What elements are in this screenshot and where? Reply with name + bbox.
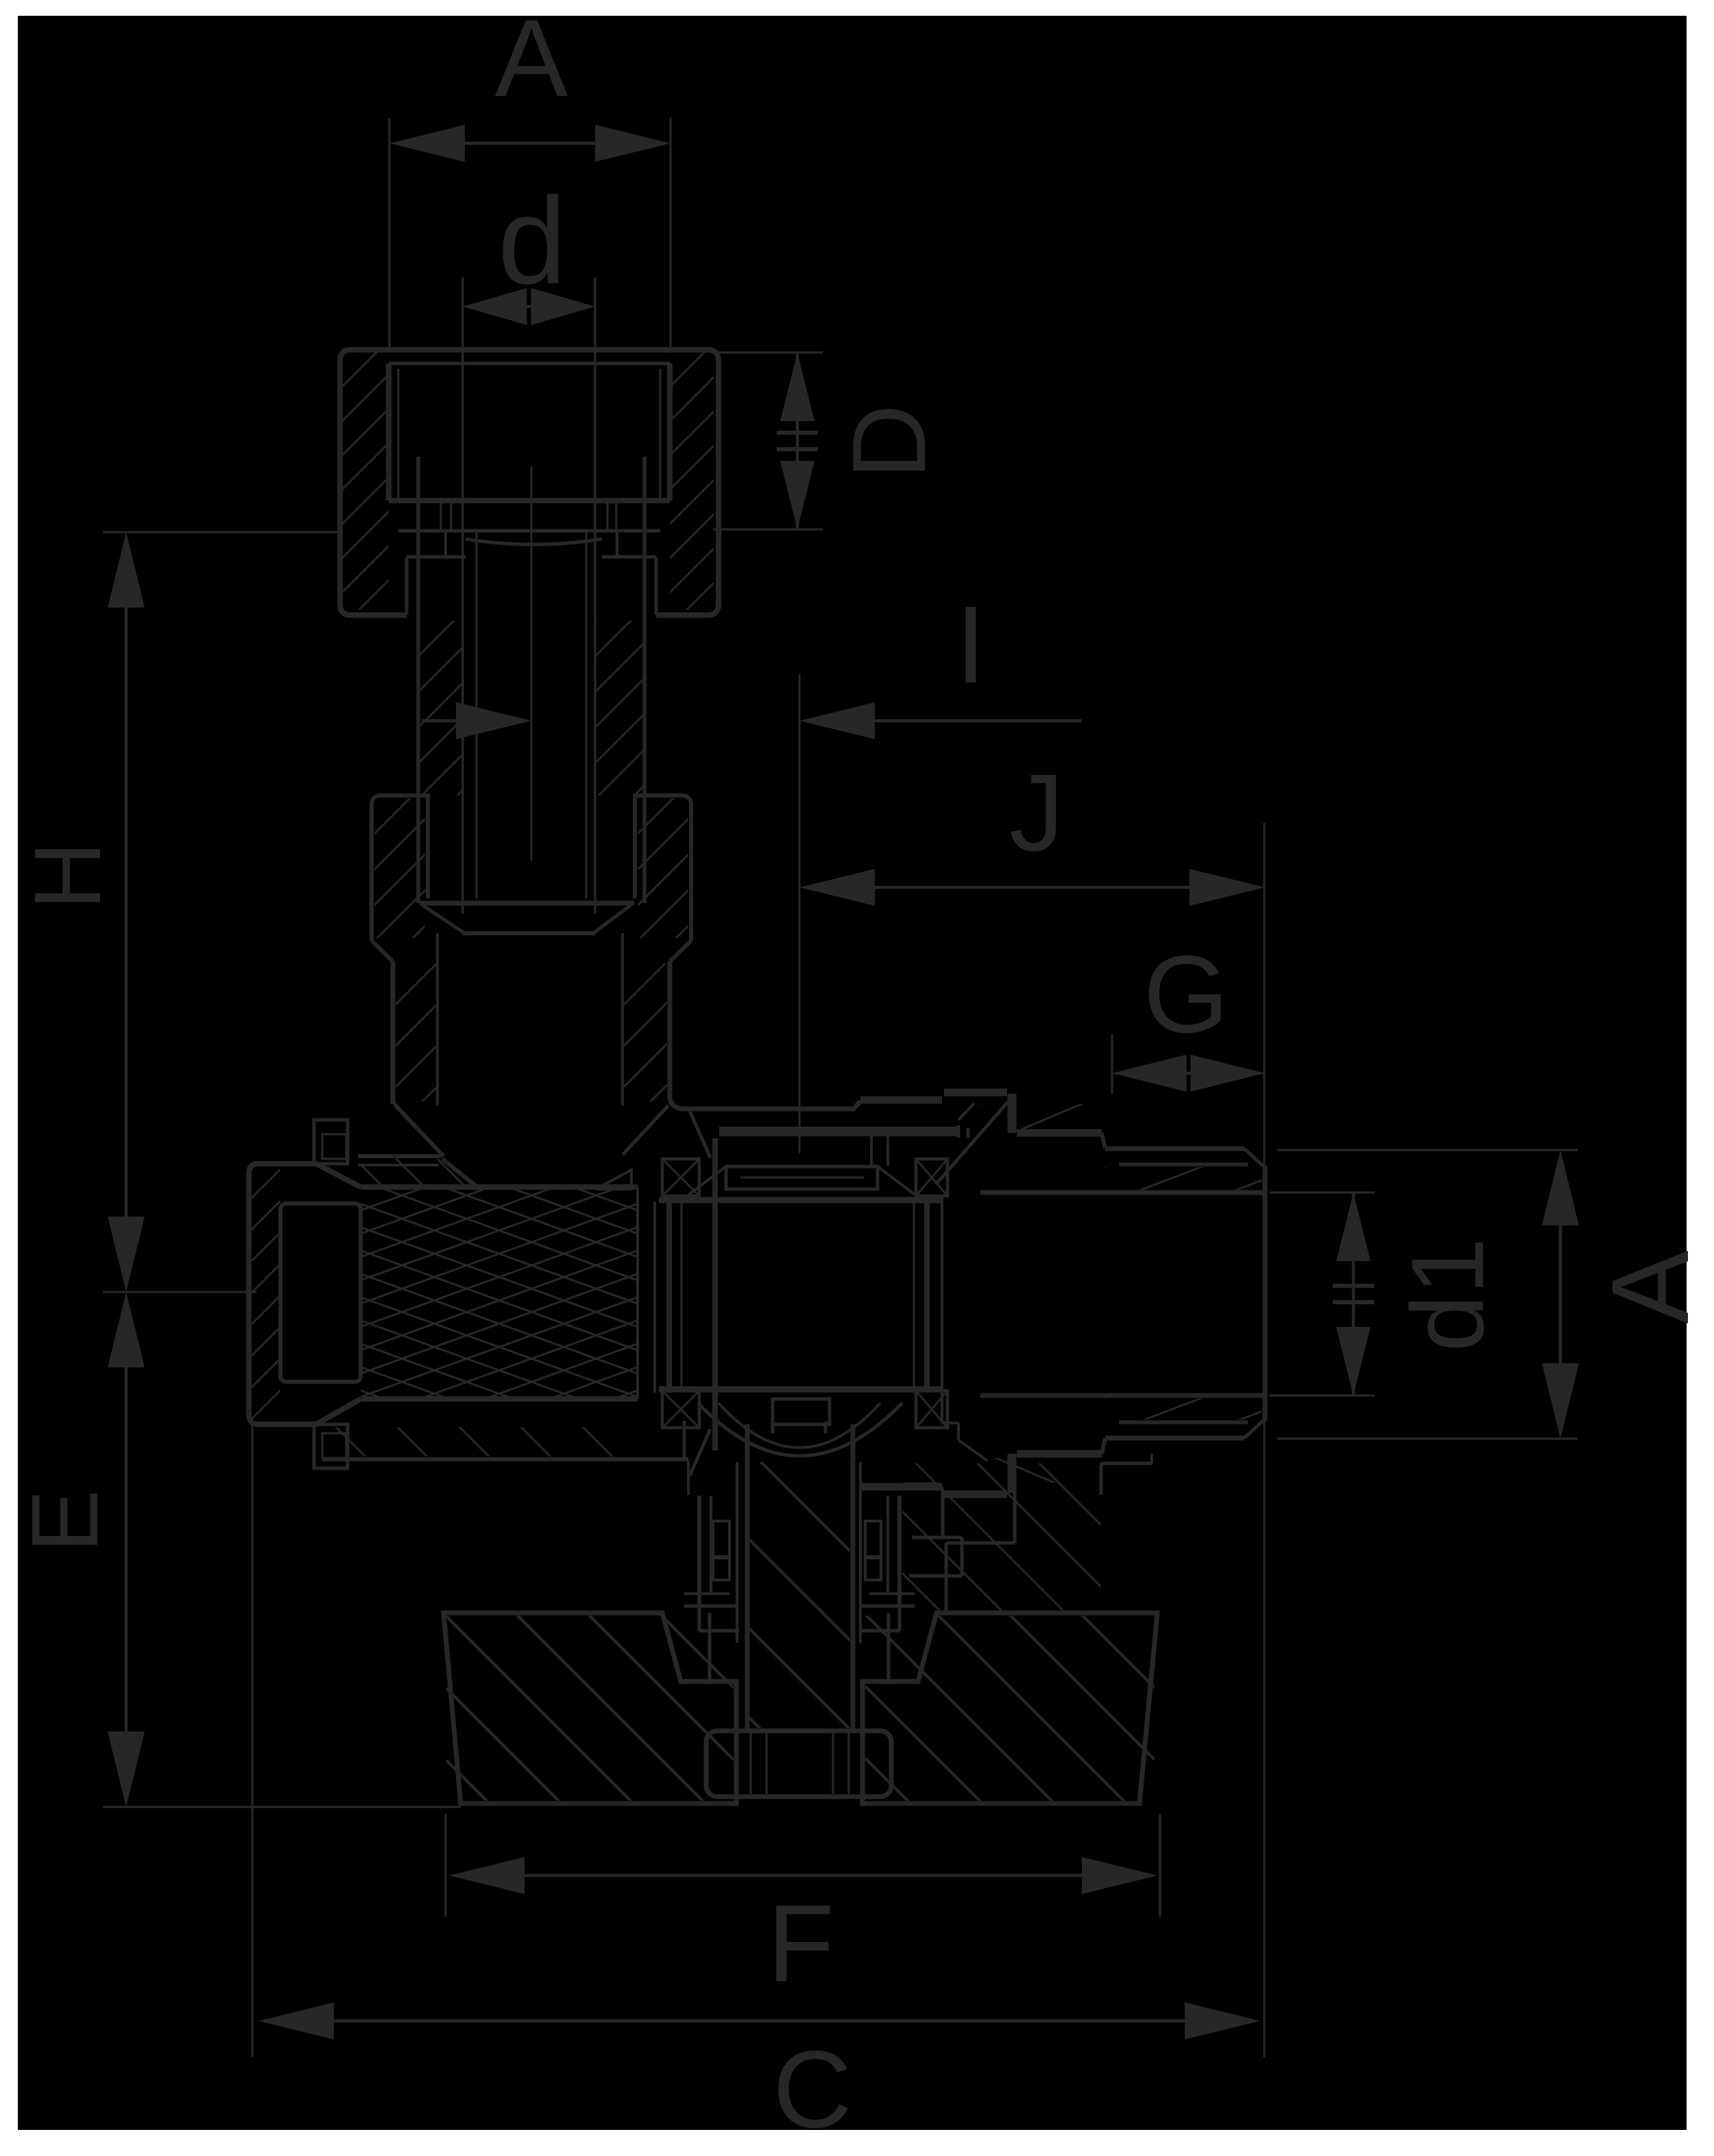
svg-text:C: C bbox=[773, 2028, 852, 2151]
svg-text:H: H bbox=[15, 841, 121, 910]
svg-text:A: A bbox=[495, 0, 568, 119]
svg-text:E: E bbox=[12, 1489, 118, 1553]
svg-text:G: G bbox=[1144, 933, 1229, 1055]
svg-text:J: J bbox=[1009, 751, 1064, 874]
svg-text:I: I bbox=[956, 583, 986, 706]
svg-text:A: A bbox=[1589, 1250, 1711, 1323]
svg-text:d1: d1 bbox=[1390, 1238, 1505, 1352]
svg-text:F: F bbox=[767, 1882, 834, 2004]
svg-text:D: D bbox=[831, 404, 947, 479]
